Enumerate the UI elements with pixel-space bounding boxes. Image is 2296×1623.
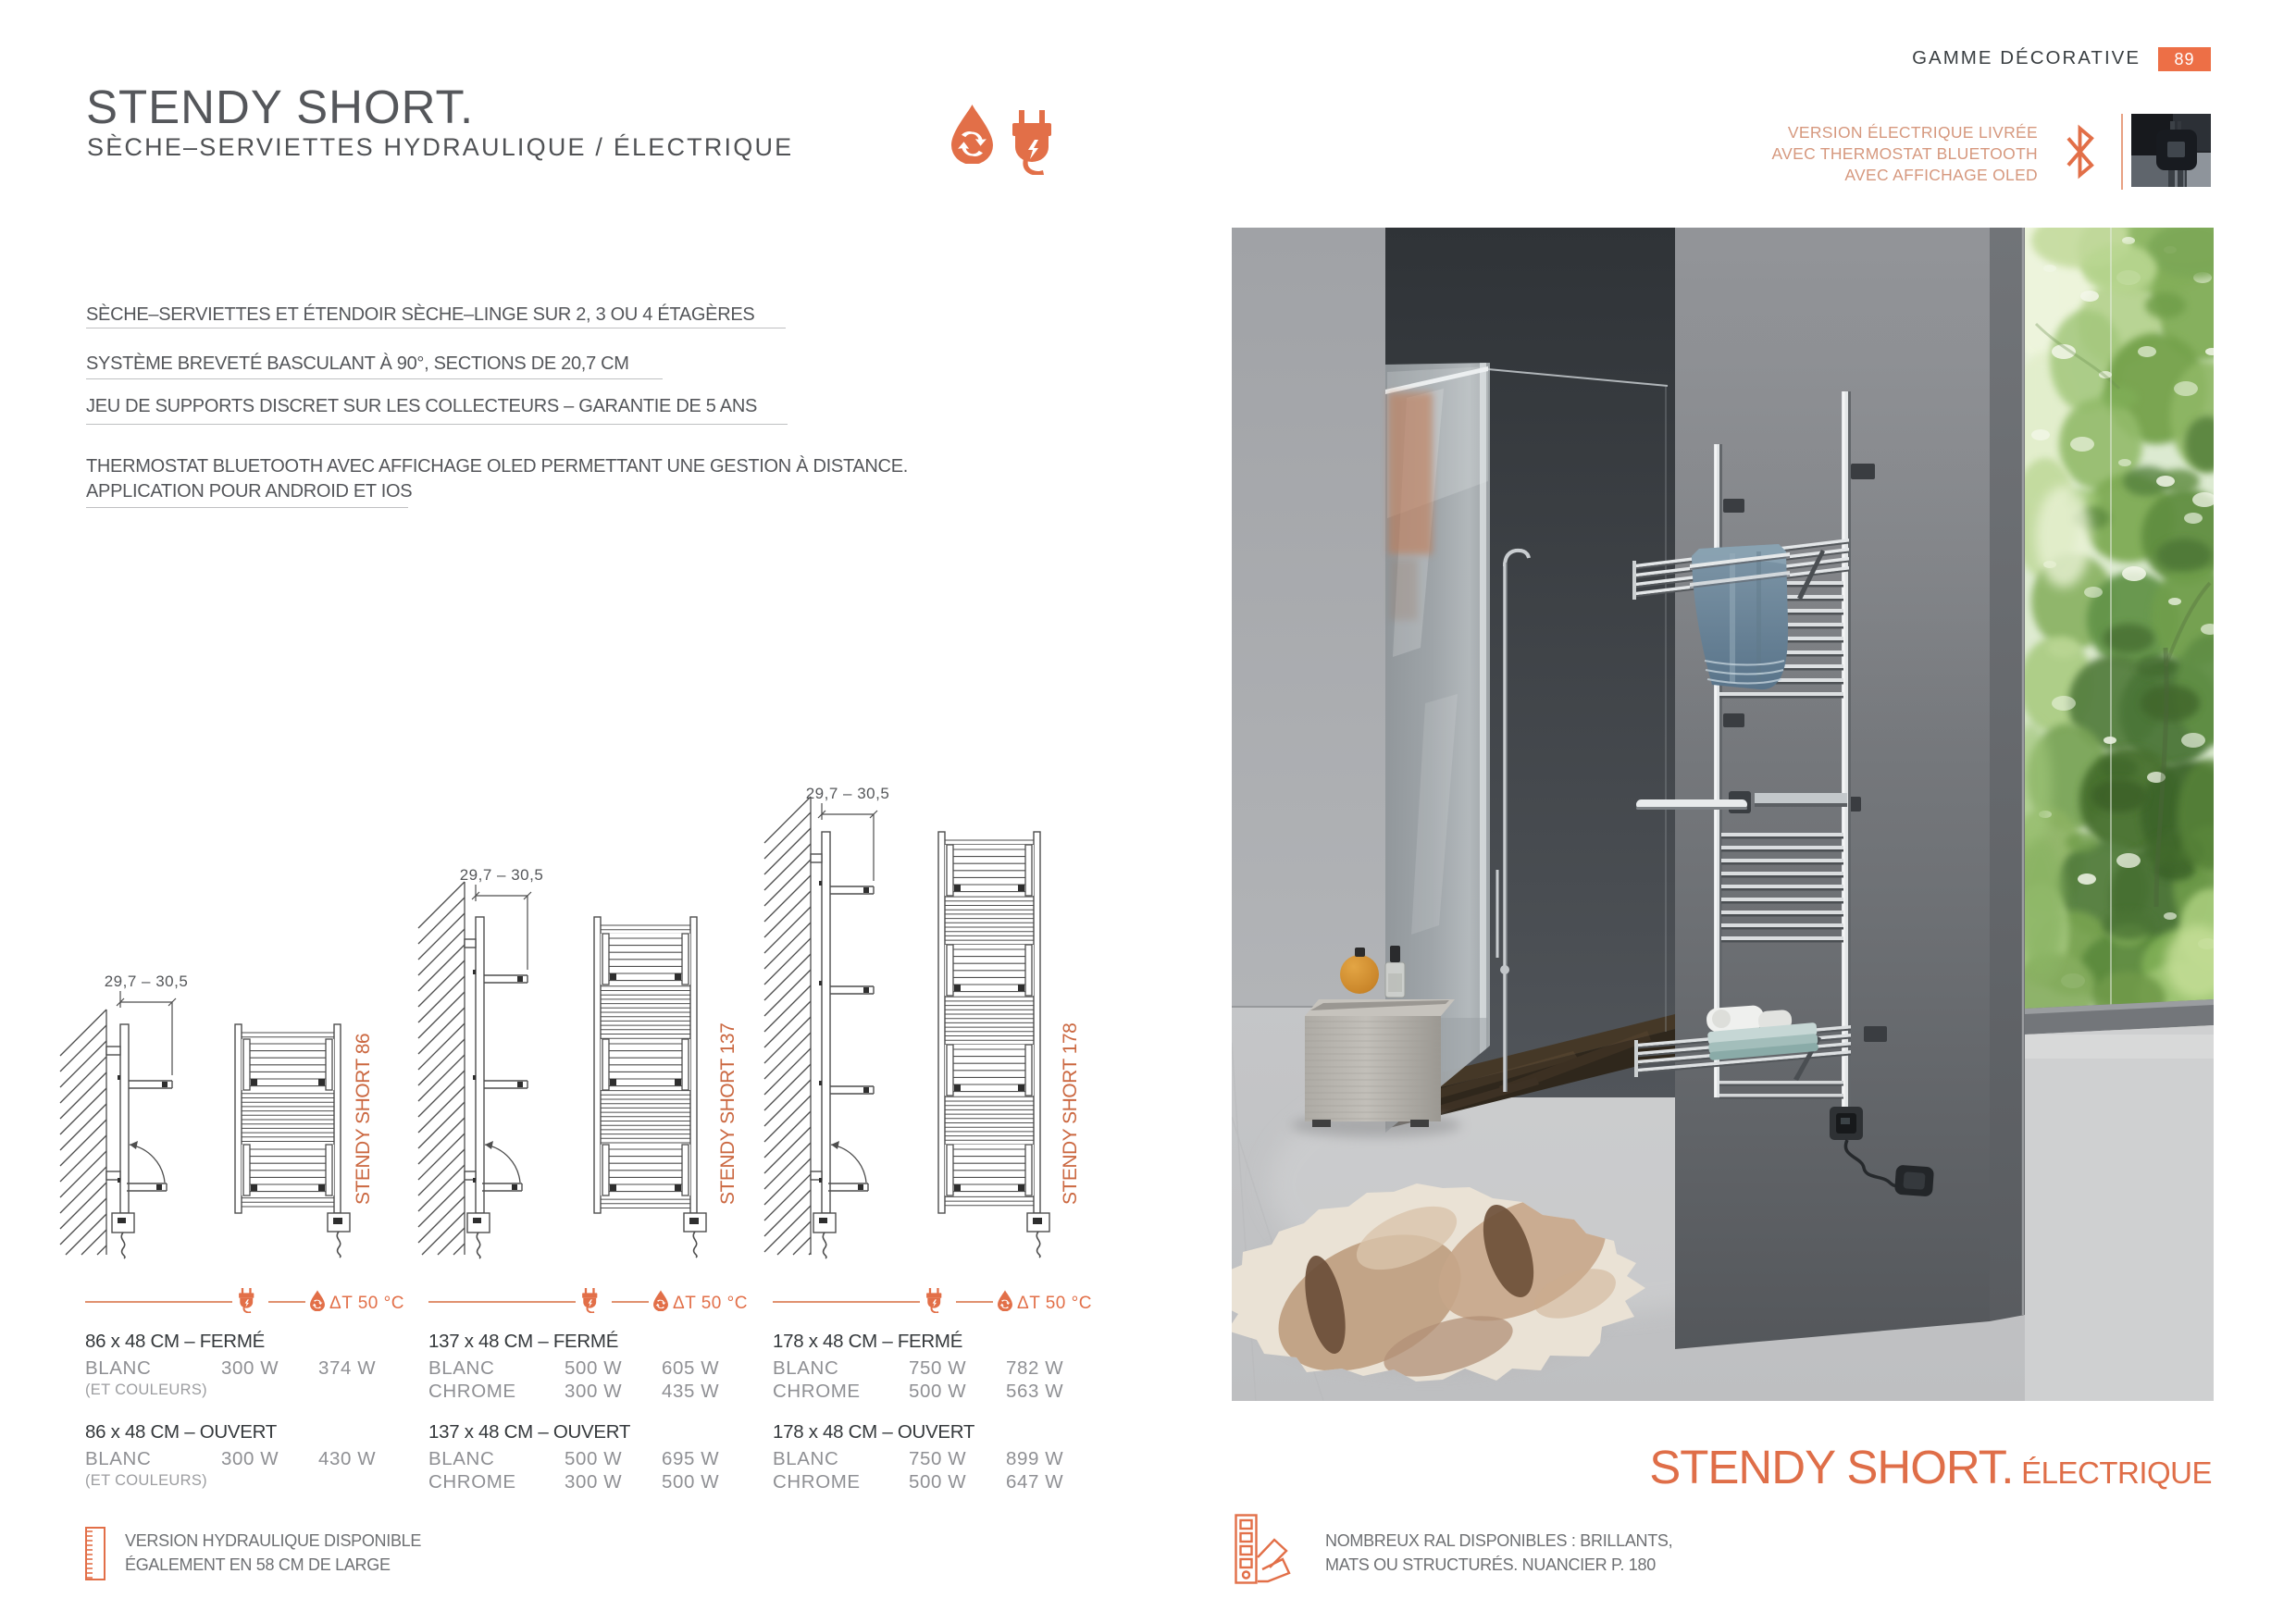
svg-text:STENDY SHORT 178: STENDY SHORT 178	[1060, 1023, 1081, 1205]
svg-text:STENDY SHORT 86: STENDY SHORT 86	[353, 1034, 374, 1205]
svg-text:STENDY SHORT 137: STENDY SHORT 137	[717, 1023, 738, 1205]
svg-text:29,7 – 30,5: 29,7 – 30,5	[806, 785, 890, 802]
svg-text:29,7 – 30,5: 29,7 – 30,5	[460, 866, 544, 884]
svg-text:29,7 – 30,5: 29,7 – 30,5	[105, 973, 189, 990]
